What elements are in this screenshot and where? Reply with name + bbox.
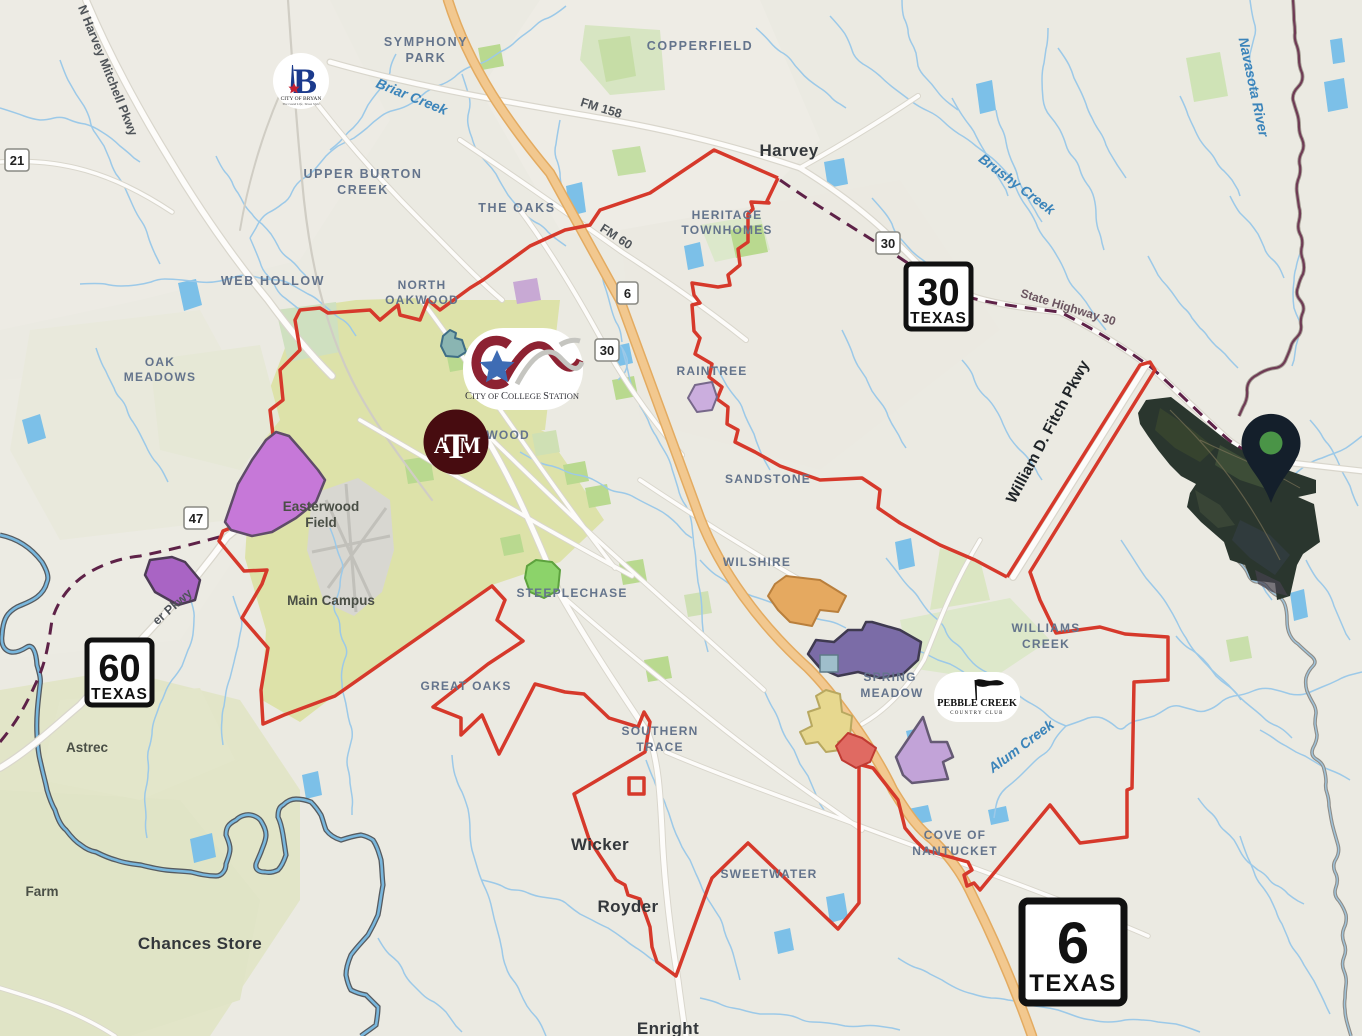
svg-text:MEADOWS: MEADOWS — [124, 370, 196, 384]
svg-text:WILLIAMS: WILLIAMS — [1012, 621, 1081, 635]
svg-text:HERITAGE: HERITAGE — [692, 208, 763, 222]
svg-text:Main Campus: Main Campus — [287, 593, 375, 608]
svg-text:60: 60 — [98, 648, 140, 690]
svg-text:COUNTRY CLUB: COUNTRY CLUB — [950, 711, 1004, 716]
svg-text:WEB HOLLOW: WEB HOLLOW — [221, 274, 325, 288]
svg-text:Chances Store: Chances Store — [138, 934, 262, 953]
svg-text:CREEK: CREEK — [1022, 637, 1070, 651]
svg-text:SWEETWATER: SWEETWATER — [720, 867, 817, 881]
svg-text:Farm: Farm — [25, 884, 58, 899]
svg-text:TEXAS: TEXAS — [910, 310, 967, 327]
svg-text:30: 30 — [600, 343, 614, 358]
svg-text:TEXAS: TEXAS — [1029, 970, 1117, 997]
svg-text:PEBBLE CREEK: PEBBLE CREEK — [937, 698, 1017, 709]
svg-text:SOUTHERN: SOUTHERN — [622, 724, 699, 738]
svg-text:SANDSTONE: SANDSTONE — [725, 472, 811, 486]
svg-text:UPPER BURTON: UPPER BURTON — [304, 167, 423, 181]
svg-text:OAK: OAK — [145, 355, 175, 369]
svg-text:T: T — [444, 426, 468, 466]
svg-text:6: 6 — [1057, 911, 1089, 976]
svg-text:WILSHIRE: WILSHIRE — [723, 555, 791, 569]
svg-text:COVE OF: COVE OF — [924, 828, 986, 842]
svg-text:Easterwood: Easterwood — [283, 499, 360, 514]
svg-text:RAINTREE: RAINTREE — [677, 364, 748, 378]
svg-text:30: 30 — [881, 236, 895, 251]
svg-text:MEADOW: MEADOW — [860, 686, 923, 700]
svg-text:OAKWOOD: OAKWOOD — [385, 293, 459, 307]
svg-text:Field: Field — [305, 515, 337, 530]
svg-text:PARK: PARK — [406, 51, 447, 65]
svg-text:CITY OF COLLEGE STATION: CITY OF COLLEGE STATION — [465, 391, 579, 402]
svg-text:Astrec: Astrec — [66, 740, 109, 755]
svg-text:TEXAS: TEXAS — [91, 686, 148, 703]
svg-text:47: 47 — [189, 511, 203, 526]
svg-text:CREEK: CREEK — [337, 183, 389, 197]
svg-text:SYMPHONY: SYMPHONY — [384, 35, 468, 49]
svg-text:Harvey: Harvey — [759, 141, 818, 160]
svg-text:TOWNHOMES: TOWNHOMES — [681, 223, 772, 237]
svg-text:THE OAKS: THE OAKS — [478, 201, 555, 215]
svg-text:COPPERFIELD: COPPERFIELD — [647, 39, 754, 53]
svg-text:GREAT OAKS: GREAT OAKS — [420, 679, 511, 693]
svg-text:Royder: Royder — [598, 897, 659, 916]
svg-text:21: 21 — [10, 153, 24, 168]
svg-text:30: 30 — [917, 272, 959, 314]
svg-text:SPRING: SPRING — [863, 670, 916, 684]
svg-text:NANTUCKET: NANTUCKET — [912, 844, 997, 858]
svg-text:STEEPLECHASE: STEEPLECHASE — [516, 586, 627, 600]
svg-text:Wicker: Wicker — [571, 835, 629, 854]
svg-text:TRACE: TRACE — [636, 740, 683, 754]
svg-text:NORTH: NORTH — [398, 278, 447, 292]
svg-text:6: 6 — [624, 286, 631, 301]
svg-text:Enright: Enright — [637, 1019, 699, 1036]
svg-text:B: B — [293, 61, 317, 101]
